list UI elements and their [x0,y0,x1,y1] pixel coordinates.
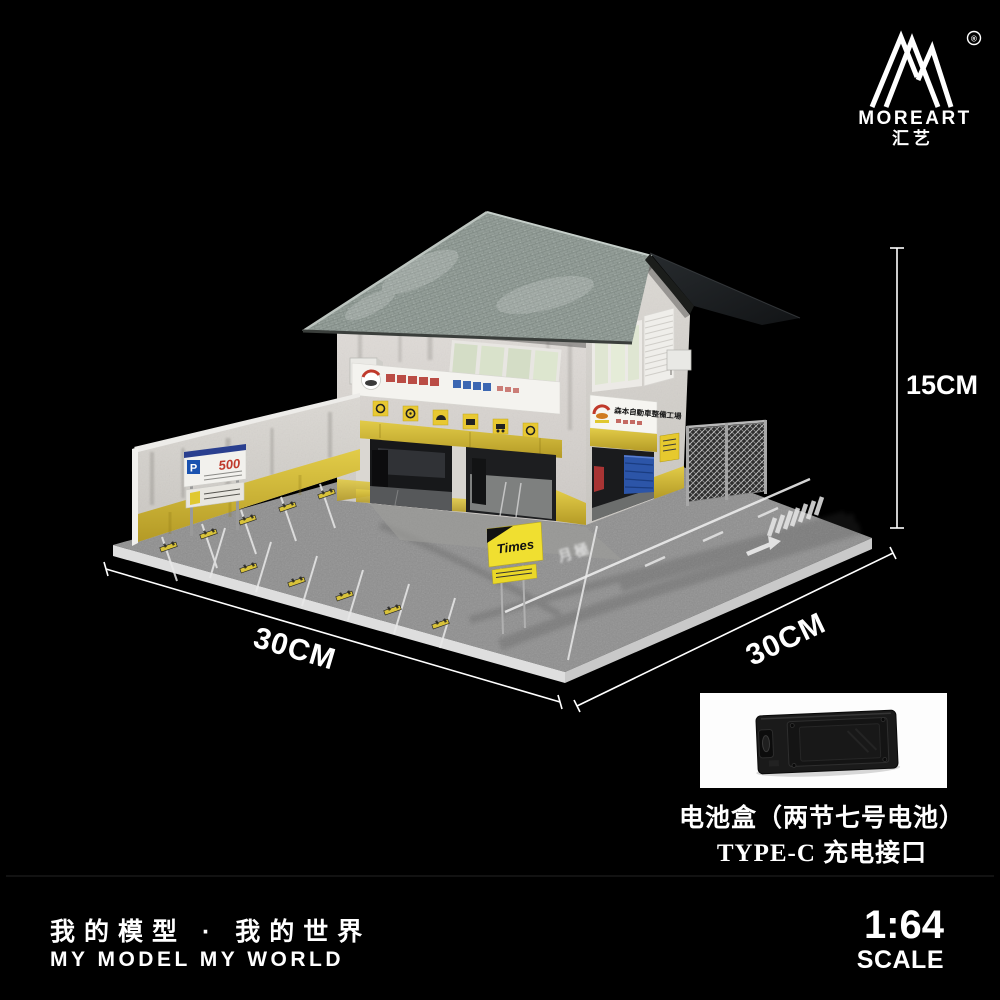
battery-panel [700,693,947,788]
brand-name: MOREART [858,108,972,129]
p-sign-letter: P [190,463,197,475]
pillar-small-sign [660,433,679,462]
louver-shutter [644,308,674,386]
garage-bay-left [370,439,452,511]
p-sign-price: 500 [218,456,242,473]
battery-box [754,710,901,779]
footer-slogan-cn: 我的模型 · 我的世界 [50,917,371,946]
product-image: ® MOREART 汇艺 [0,0,1000,1000]
height-label: 15CM [906,370,978,400]
garage-bay-right [466,447,556,521]
wall-end-cap [132,447,138,546]
registered-mark: ® [971,35,977,44]
footer-scale-word: SCALE [857,946,944,974]
footer-slogan-en: MY MODEL MY WORLD [50,948,344,971]
red-tool-cabinet [594,466,604,492]
battery-caption-line2: TYPE-C 充电接口 [717,838,927,867]
footer-scale-ratio: 1:64 [864,903,945,947]
brand-name-cn: 汇艺 [892,128,934,148]
battery-caption-line1: 电池盒（两节七号电池） [679,803,965,832]
